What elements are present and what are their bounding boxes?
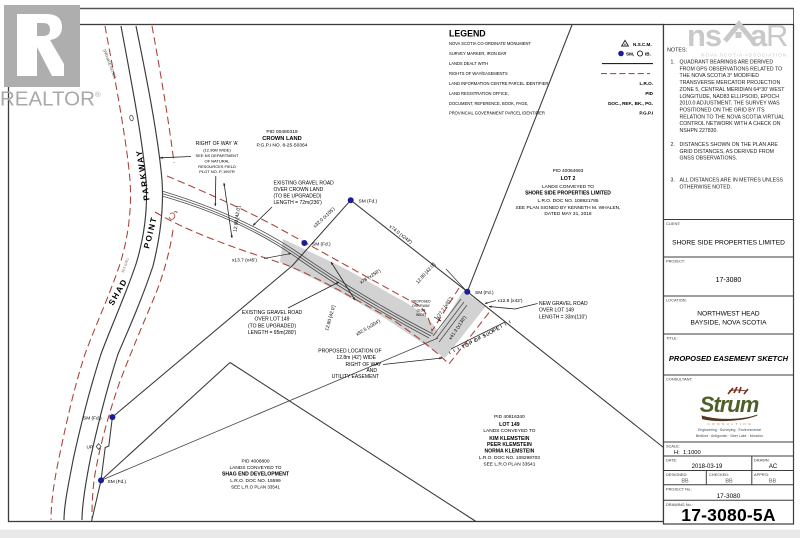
svg-text:SCALE:: SCALE: bbox=[666, 444, 680, 449]
svg-text:17-3080: 17-3080 bbox=[716, 277, 742, 284]
svg-text:BB: BB bbox=[725, 478, 733, 484]
svg-text:CLIENT:: CLIENT: bbox=[666, 221, 680, 226]
svg-text:2010.0 ADJUSTMENT. THE SURVEY: 2010.0 ADJUSTMENT. THE SURVEY WAS bbox=[680, 101, 781, 107]
svg-text:NEW GRAVEL ROAD: NEW GRAVEL ROAD bbox=[539, 301, 588, 307]
svg-text:ZONE 5, CENTRAL MERIDIAN 64°30: ZONE 5, CENTRAL MERIDIAN 64°30' WEST bbox=[680, 87, 786, 93]
svg-text:NOVA SCOTIA ASSOCIATION: NOVA SCOTIA ASSOCIATION bbox=[701, 53, 787, 59]
svg-text:OVER LOT 149: OVER LOT 149 bbox=[539, 307, 574, 313]
svg-text:H: 1:1000: H: 1:1000 bbox=[674, 450, 701, 456]
svg-text:17-3080: 17-3080 bbox=[717, 493, 741, 500]
svg-text:ns: ns bbox=[687, 18, 721, 53]
svg-text:x13.7 (x45'): x13.7 (x45') bbox=[232, 258, 257, 264]
svg-text:L.R.O. DOC NO. 108299703: L.R.O. DOC NO. 108299703 bbox=[479, 455, 540, 461]
svg-text:CHECKED:: CHECKED: bbox=[709, 472, 729, 477]
svg-text:PID 00480319: PID 00480319 bbox=[266, 129, 298, 135]
svg-text:NSHPN 227830.: NSHPN 227830. bbox=[680, 128, 718, 134]
svg-text:(TO BE UPGRADED): (TO BE UPGRADED) bbox=[274, 194, 322, 200]
svg-text:Engineering · Surveying · Envi: Engineering · Surveying · Environmental bbox=[698, 428, 761, 432]
svg-text:BB: BB bbox=[681, 478, 689, 484]
svg-text:(3.0M: (3.0M bbox=[417, 308, 426, 312]
svg-text:SM,: SM, bbox=[626, 52, 634, 57]
svg-text:OTHERWISE NOTED.: OTHERWISE NOTED. bbox=[680, 185, 732, 191]
svg-text:SM (Fd.): SM (Fd.) bbox=[475, 290, 494, 296]
svg-text:EXISTING GRAVEL ROAD: EXISTING GRAVEL ROAD bbox=[274, 181, 335, 187]
svg-text:PROVINCIAL GOVERNMENT PARCEL I: PROVINCIAL GOVERNMENT PARCEL IDENTIFIER bbox=[449, 111, 545, 116]
svg-text:C O N S U L T I N G: C O N S U L T I N G bbox=[707, 422, 751, 426]
svg-text:SHORE SIDE PROPERTIES LIMITED: SHORE SIDE PROPERTIES LIMITED bbox=[525, 191, 611, 197]
svg-text:APPR'D:: APPR'D: bbox=[754, 472, 769, 477]
svg-text:LENGTH = 72m(236'): LENGTH = 72m(236') bbox=[274, 200, 323, 206]
svg-text:REALTOR®: REALTOR® bbox=[0, 88, 101, 111]
svg-text:PEER KLEMSTEIN: PEER KLEMSTEIN bbox=[487, 442, 532, 448]
svg-text:PID: PID bbox=[645, 91, 653, 96]
svg-text:1.: 1. bbox=[671, 60, 675, 66]
svg-text:FROM GPS OBSERVATIONS RELATED: FROM GPS OBSERVATIONS RELATED TO bbox=[680, 66, 783, 72]
svg-text:OF NATURAL: OF NATURAL bbox=[204, 158, 230, 163]
svg-text:GRID DISTANCES, AS DERIVED FRO: GRID DISTANCES, AS DERIVED FROM bbox=[680, 149, 774, 155]
svg-text:P.G.P.I: P.G.P.I bbox=[639, 111, 653, 116]
svg-text:RELATION TO THE NOVA SCOTIA VI: RELATION TO THE NOVA SCOTIA VIRTUAL bbox=[680, 114, 785, 120]
svg-text:Bedford · Antigonish · Deer La: Bedford · Antigonish · Deer Lake · Monct… bbox=[696, 434, 763, 438]
svg-text:NOTES:: NOTES: bbox=[667, 48, 687, 54]
svg-text:QUADRANT BEARINGS ARE DERIVED: QUADRANT BEARINGS ARE DERIVED bbox=[680, 60, 774, 66]
svg-text:SHORE SIDE PROPERTIES LIMITED: SHORE SIDE PROPERTIES LIMITED bbox=[672, 240, 785, 247]
svg-text:SEE L.R.O PLAN 33541: SEE L.R.O PLAN 33541 bbox=[483, 461, 535, 467]
svg-text:SEE L.R.O PLAN 33541: SEE L.R.O PLAN 33541 bbox=[231, 485, 280, 490]
svg-text:SM (Fd.): SM (Fd.) bbox=[108, 479, 127, 485]
svg-text:LAND REGISTRATION OFFICE,: LAND REGISTRATION OFFICE, bbox=[449, 91, 509, 96]
svg-text:ALL DISTANCES ARE IN METRES UN: ALL DISTANCES ARE IN METRES UNLESS bbox=[680, 178, 784, 184]
svg-text:LANDS DEALT WITH: LANDS DEALT WITH bbox=[449, 61, 488, 66]
svg-text:SM (Fd.): SM (Fd.) bbox=[359, 199, 378, 205]
svg-text:SM (Fd.): SM (Fd.) bbox=[312, 241, 331, 247]
svg-text:DRIVEWAY: DRIVEWAY bbox=[412, 304, 430, 308]
svg-text:17-3080-5A: 17-3080-5A bbox=[681, 505, 776, 525]
svg-text:LANDS CONVEYED TO: LANDS CONVEYED TO bbox=[542, 184, 594, 190]
svg-text:DESIGNED:: DESIGNED: bbox=[666, 472, 687, 477]
svg-text:LONGITUDE, NAD83 ELLIPSOID, EP: LONGITUDE, NAD83 ELLIPSOID, EPOCH bbox=[680, 94, 780, 100]
svg-text:AND: AND bbox=[366, 368, 377, 374]
svg-text:THE NOVA SCOTIA 3° MODIFIED: THE NOVA SCOTIA 3° MODIFIED bbox=[680, 73, 760, 79]
svg-text:LEGEND: LEGEND bbox=[449, 29, 486, 39]
svg-text:SHAG END DEVELOPMENT: SHAG END DEVELOPMENT bbox=[222, 471, 290, 477]
svg-text:DRAWN:: DRAWN: bbox=[754, 458, 770, 463]
svg-text:(TO BE UPGRADED): (TO BE UPGRADED) bbox=[248, 324, 296, 330]
svg-text:L.R.O. DOC NO. 108921785: L.R.O. DOC NO. 108921785 bbox=[537, 198, 598, 204]
svg-text:LOCATION:: LOCATION: bbox=[666, 298, 687, 303]
svg-text:KIM KLEMSTEIN: KIM KLEMSTEIN bbox=[489, 436, 530, 442]
svg-text:L.R.O. DOC NO. 15599: L.R.O. DOC NO. 15599 bbox=[230, 478, 281, 484]
svg-text:P.G.P.I NO. 8-25-50364: P.G.P.I NO. 8-25-50364 bbox=[257, 143, 308, 149]
svg-text:PROPOSED LOCATION OF: PROPOSED LOCATION OF bbox=[318, 349, 381, 355]
svg-text:NORTHWEST HEAD: NORTHWEST HEAD bbox=[697, 311, 760, 318]
svg-text:LENGTH = 33m(110'): LENGTH = 33m(110') bbox=[539, 315, 587, 321]
svg-text:LOT 149: LOT 149 bbox=[499, 422, 520, 428]
svg-text:PROJECT:: PROJECT: bbox=[666, 259, 685, 264]
svg-text:SM (Fd.): SM (Fd.) bbox=[83, 416, 102, 422]
svg-text:LANDS CONVEYED TO: LANDS CONVEYED TO bbox=[229, 465, 281, 471]
svg-text:SURVEY MARKER, IRON BAR: SURVEY MARKER, IRON BAR bbox=[449, 51, 506, 56]
svg-text:SEE NS DEPARTMENT: SEE NS DEPARTMENT bbox=[196, 153, 240, 158]
svg-text:DATED MAY 31, 2018: DATED MAY 31, 2018 bbox=[544, 211, 592, 217]
svg-text:NOVA SCOTIA CO-ORDINATE MONUME: NOVA SCOTIA CO-ORDINATE MONUMENT bbox=[449, 41, 531, 46]
svg-text:PROJECT No.:: PROJECT No.: bbox=[666, 487, 692, 492]
svg-text:EXISTING GRAVEL ROAD: EXISTING GRAVEL ROAD bbox=[242, 310, 303, 316]
svg-text:x12.8 (x42'): x12.8 (x42') bbox=[498, 298, 523, 304]
svg-text:RESOURCES FIELD: RESOURCES FIELD bbox=[198, 164, 236, 169]
svg-text:CONTROL NETWORK WITH A CHECK O: CONTROL NETWORK WITH A CHECK ON bbox=[680, 121, 781, 127]
svg-text:LANDS CONVEYED TO: LANDS CONVEYED TO bbox=[483, 428, 535, 434]
svg-text:2018-03-19: 2018-03-19 bbox=[692, 464, 723, 470]
svg-text:BB: BB bbox=[769, 478, 777, 484]
svg-text:UP: UP bbox=[87, 445, 93, 450]
svg-text:PID 40816340: PID 40816340 bbox=[494, 414, 525, 420]
svg-text:BAYSIDE, NOVA SCOTIA: BAYSIDE, NOVA SCOTIA bbox=[691, 320, 768, 327]
svg-text:3.: 3. bbox=[671, 178, 675, 184]
svg-text:IB.: IB. bbox=[645, 52, 651, 57]
svg-text:GNSS OBSERVATIONS.: GNSS OBSERVATIONS. bbox=[680, 156, 738, 162]
svg-text:PROPOSED: PROPOSED bbox=[411, 299, 431, 303]
svg-text:RIGHTS OF WAY/EASEMENTS: RIGHTS OF WAY/EASEMENTS bbox=[449, 71, 508, 76]
svg-text:TITLE:: TITLE: bbox=[666, 336, 678, 341]
svg-text:2.: 2. bbox=[671, 142, 675, 148]
svg-text:POSITIONED ON THE GRID BY ITS: POSITIONED ON THE GRID BY ITS bbox=[680, 108, 766, 114]
svg-text:12.8m (42') WIDE: 12.8m (42') WIDE bbox=[336, 355, 376, 361]
svg-text:RIGHT OF WAY 'A': RIGHT OF WAY 'A' bbox=[196, 141, 239, 147]
svg-text:LENGTH = 95m(280'): LENGTH = 95m(280') bbox=[248, 330, 297, 336]
svg-text:CONSULTANT:: CONSULTANT: bbox=[666, 377, 692, 382]
svg-text:(12.96M WIDE): (12.96M WIDE) bbox=[203, 148, 231, 153]
svg-text:NORMA KLEMSTEIN: NORMA KLEMSTEIN bbox=[484, 449, 534, 455]
svg-text:PLOT NO. P-1997R: PLOT NO. P-1997R bbox=[199, 169, 235, 174]
svg-text:PROPOSED EASEMENT SKETCH: PROPOSED EASEMENT SKETCH bbox=[669, 354, 789, 363]
svg-text:AC: AC bbox=[769, 464, 778, 470]
svg-text:WIDE): WIDE) bbox=[416, 313, 426, 317]
svg-text:PID 4006800: PID 4006800 bbox=[241, 458, 269, 464]
svg-text:N.S.C.M.: N.S.C.M. bbox=[633, 42, 652, 47]
svg-text:OVER LOT 149: OVER LOT 149 bbox=[255, 316, 290, 322]
svg-text:OVER CROWN LAND: OVER CROWN LAND bbox=[274, 187, 324, 193]
svg-text:SEE PLAN SIGNED BY KENNETH M.: SEE PLAN SIGNED BY KENNETH M. WHALEN, bbox=[516, 205, 621, 211]
svg-text:DOCUMENT, REFERENCE, BOOK, PAG: DOCUMENT, REFERENCE, BOOK, PAGE, bbox=[449, 101, 528, 106]
svg-text:UTILITY EASEMENT: UTILITY EASEMENT bbox=[332, 374, 379, 380]
svg-text:DOC., REF., BK., PG.: DOC., REF., BK., PG. bbox=[608, 101, 653, 106]
svg-text:Strum: Strum bbox=[700, 392, 759, 417]
svg-text:PID 40064693: PID 40064693 bbox=[553, 168, 584, 174]
svg-text:R: R bbox=[766, 18, 787, 53]
svg-text:L.R.O.: L.R.O. bbox=[639, 81, 653, 86]
svg-text:RIGHT OF WAY: RIGHT OF WAY bbox=[345, 362, 382, 368]
svg-text:DATE:: DATE: bbox=[666, 458, 677, 463]
svg-text:CROWN LAND: CROWN LAND bbox=[262, 136, 302, 142]
svg-text:LAND INFORMATION CENTRE PARCEL: LAND INFORMATION CENTRE PARCEL IDENTIFIE… bbox=[449, 81, 548, 86]
svg-text:TRANSVERSE MERCATOR PROJECTION: TRANSVERSE MERCATOR PROJECTION bbox=[680, 80, 781, 86]
svg-text:LOT 2: LOT 2 bbox=[561, 176, 576, 182]
svg-text:DISTANCES SHOWN ON THE PLAN AR: DISTANCES SHOWN ON THE PLAN ARE bbox=[680, 142, 779, 148]
